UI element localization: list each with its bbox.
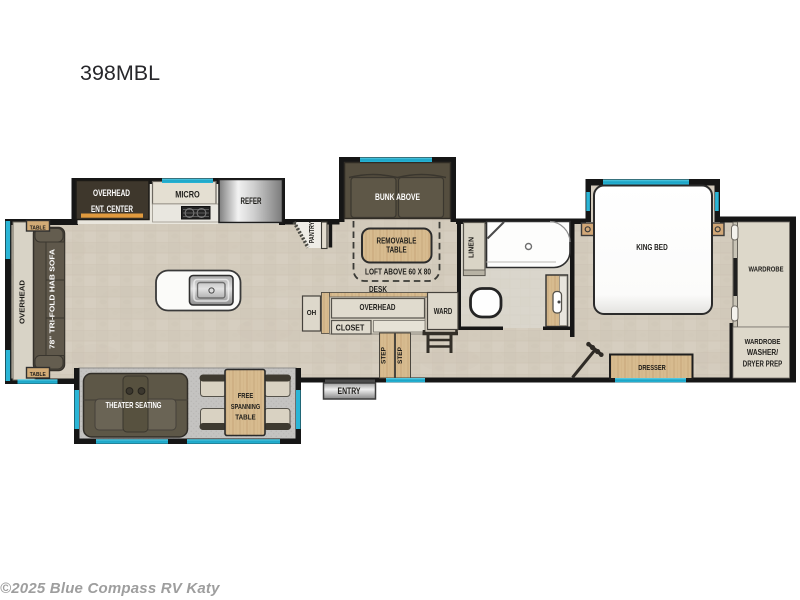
- svg-text:LOFT ABOVE 60 X 80: LOFT ABOVE 60 X 80: [365, 266, 431, 276]
- svg-text:TABLE: TABLE: [30, 226, 46, 232]
- svg-text:DRYER PREP: DRYER PREP: [743, 360, 782, 369]
- svg-text:LINEN: LINEN: [467, 237, 476, 258]
- svg-text:SPANNING: SPANNING: [231, 402, 261, 411]
- svg-text:STEP: STEP: [397, 347, 404, 364]
- svg-text:TABLE: TABLE: [235, 413, 256, 422]
- svg-text:TABLE: TABLE: [30, 372, 46, 378]
- svg-text:OVERHEAD: OVERHEAD: [360, 302, 396, 312]
- svg-text:TABLE: TABLE: [386, 246, 407, 255]
- svg-text:OH: OH: [307, 308, 317, 317]
- svg-text:STEP: STEP: [381, 347, 388, 364]
- svg-text:DRESSER: DRESSER: [638, 363, 666, 372]
- svg-text:ENTRY: ENTRY: [338, 386, 361, 396]
- svg-text:REMOVABLE: REMOVABLE: [377, 237, 418, 246]
- svg-text:BUNK ABOVE: BUNK ABOVE: [375, 192, 420, 203]
- svg-text:FREE: FREE: [238, 391, 254, 400]
- svg-text:WARDROBE: WARDROBE: [749, 265, 784, 274]
- svg-text:WARD: WARD: [434, 307, 453, 316]
- svg-text:OVERHEAD: OVERHEAD: [18, 279, 27, 324]
- svg-text:78" TRI-FOLD HAB SOFA: 78" TRI-FOLD HAB SOFA: [48, 248, 57, 349]
- svg-text:OVERHEAD: OVERHEAD: [93, 188, 130, 199]
- svg-text:ENT. CENTER: ENT. CENTER: [91, 204, 133, 215]
- svg-text:MICRO: MICRO: [175, 190, 200, 201]
- svg-text:KING BED: KING BED: [636, 243, 668, 252]
- svg-text:WASHER/: WASHER/: [747, 348, 779, 357]
- svg-text:WARDROBE: WARDROBE: [745, 337, 781, 346]
- svg-text:REFER: REFER: [241, 196, 262, 207]
- svg-text:THEATER SEATING: THEATER SEATING: [106, 401, 162, 410]
- svg-text:CLOSET: CLOSET: [336, 323, 365, 332]
- svg-text:PANTRY: PANTRY: [307, 222, 316, 244]
